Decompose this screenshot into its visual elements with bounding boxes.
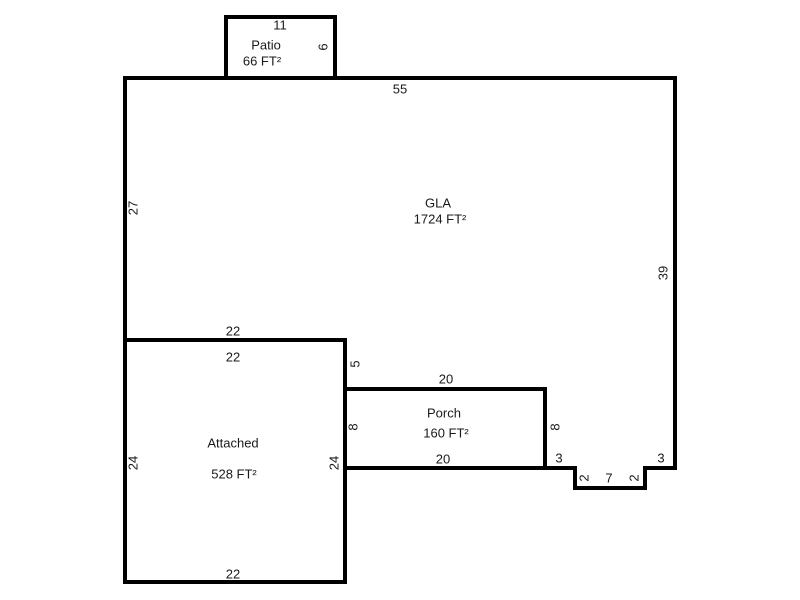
patio-area: 66 FT²	[243, 54, 282, 69]
gla-left-dim: 27	[126, 201, 141, 215]
attached-area: 528 FT²	[211, 467, 257, 482]
patio-height-dim: 6	[316, 43, 331, 50]
floor-plan-page: 11Patio66 FT²65527GLA1724 FT²392222520Po…	[0, 0, 800, 600]
porch-bottom-dim: 20	[436, 452, 450, 467]
gla-top-dim: 55	[393, 82, 407, 97]
patio-width-dim: 11	[273, 18, 287, 33]
floor-plan-svg: 11Patio66 FT²65527GLA1724 FT²392222520Po…	[0, 0, 800, 600]
attached-left-dim: 24	[126, 456, 141, 470]
gla-bottom-dim-3-left: 3	[555, 451, 562, 466]
porch-left-dim: 8	[346, 423, 361, 430]
notch-bottom-dim: 7	[605, 471, 612, 486]
gla-name: GLA	[425, 196, 451, 211]
porch-right-dim: 8	[548, 423, 563, 430]
gla-outline	[125, 78, 675, 488]
porch-top-dim: 20	[439, 372, 453, 387]
attached-outline	[125, 340, 345, 582]
gla-bottom-dim-3-right: 3	[657, 451, 664, 466]
patio-name: Patio	[251, 38, 281, 53]
gla-bottom-left-dim: 22	[226, 324, 240, 339]
porch-name: Porch	[427, 406, 461, 421]
attached-right-dim: 24	[327, 456, 342, 470]
notch-right-dim: 2	[627, 474, 642, 481]
gla-step-dim: 5	[348, 360, 363, 367]
attached-name: Attached	[207, 436, 258, 451]
gla-area: 1724 FT²	[414, 212, 467, 227]
notch-left-dim: 2	[577, 474, 592, 481]
porch-area: 160 FT²	[423, 426, 469, 441]
attached-bottom-dim: 22	[226, 567, 240, 582]
attached-top-dim: 22	[226, 350, 240, 365]
gla-right-dim: 39	[656, 266, 671, 280]
